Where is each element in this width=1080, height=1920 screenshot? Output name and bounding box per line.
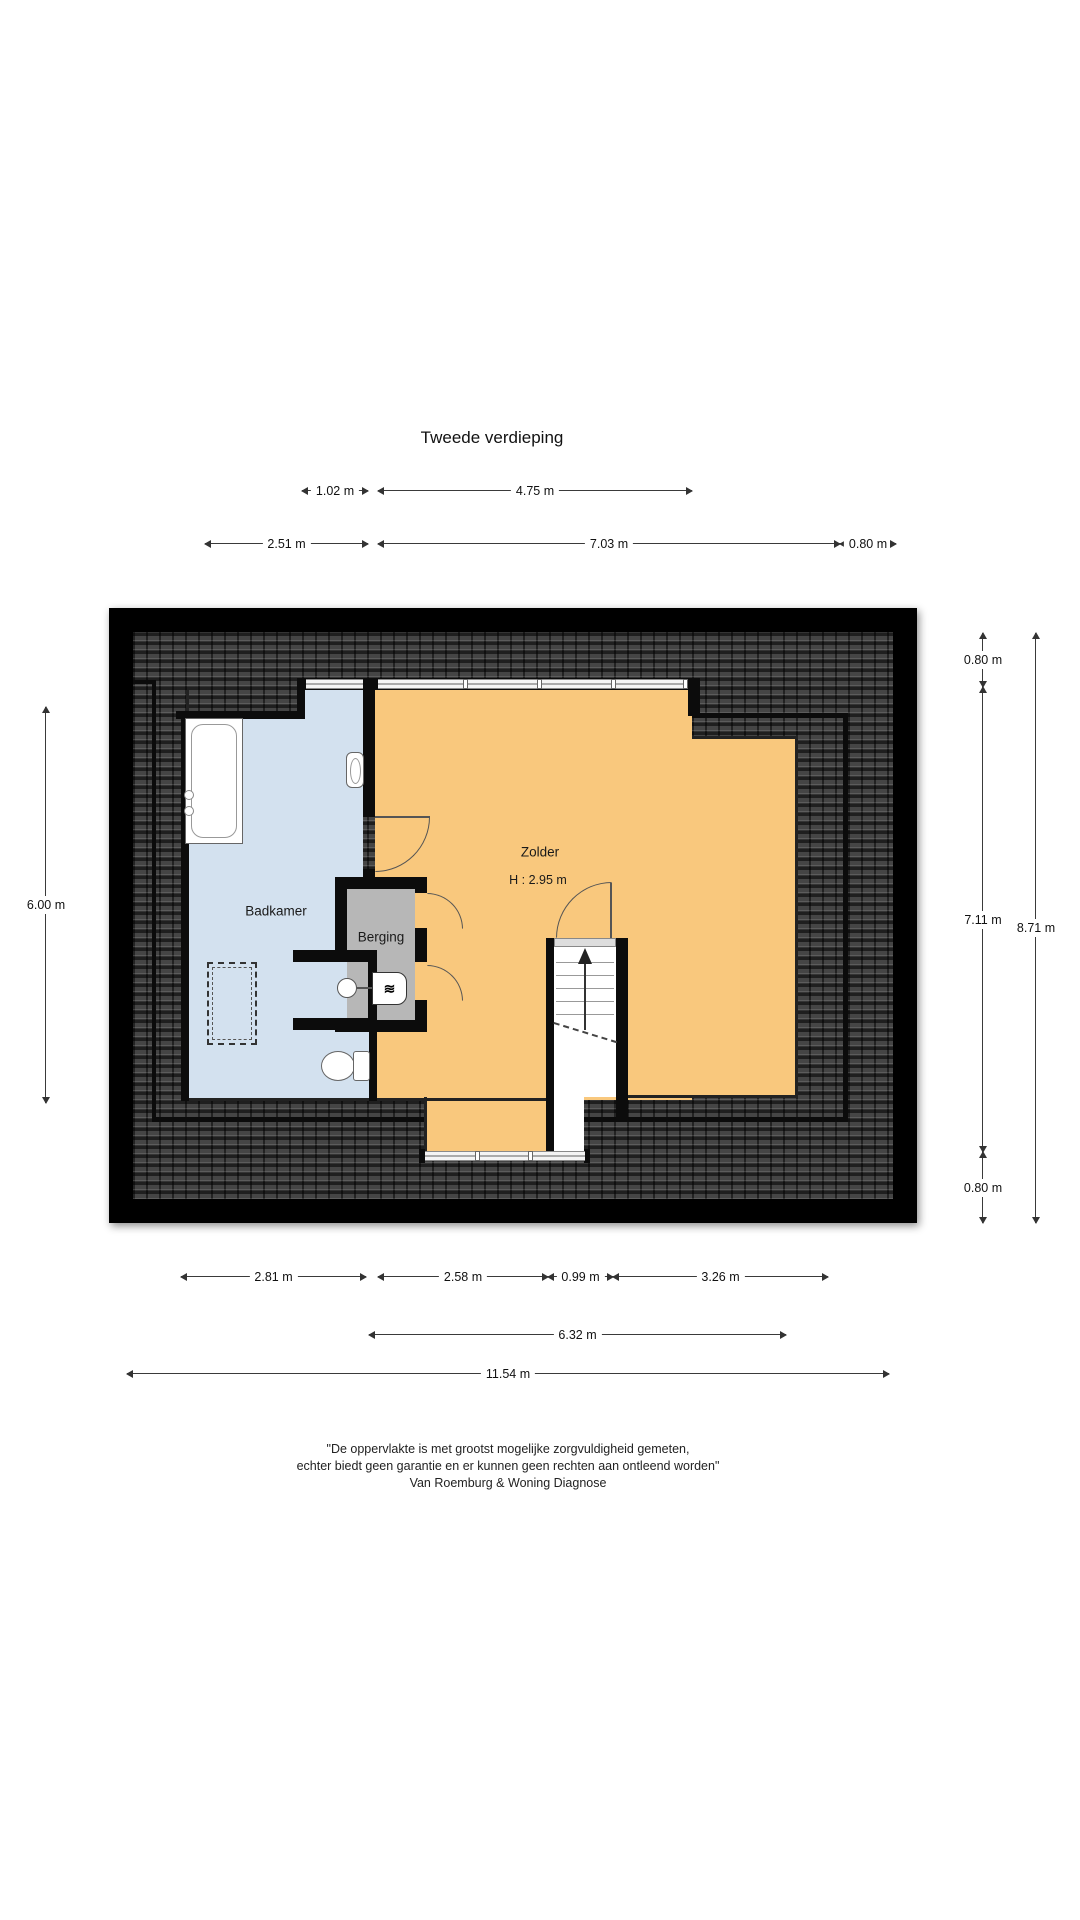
wall-berging-right-b xyxy=(415,928,427,962)
zolder-bottom-edge-right xyxy=(628,1095,797,1098)
roofline-topleft xyxy=(133,680,156,684)
dim-right-871: 8.71 m xyxy=(1035,633,1036,1223)
roofline-topright xyxy=(692,713,848,718)
dim-top-703: 7.03 m xyxy=(378,543,840,544)
sink xyxy=(346,752,364,788)
window-mullion xyxy=(537,679,542,689)
zolder-label: Zolder xyxy=(521,845,559,860)
window-bottom xyxy=(425,1151,585,1161)
disclaimer-line-3: Van Roemburg & Woning Diagnose xyxy=(158,1475,858,1492)
zolder-notch-edge xyxy=(692,736,798,739)
washbasin-connector xyxy=(357,987,373,989)
roofline-right xyxy=(843,713,848,1122)
zolder-floor-right xyxy=(692,738,797,1097)
wall-divider-jamb xyxy=(363,869,375,877)
dim-bottom-632: 6.32 m xyxy=(369,1334,786,1335)
dim-left-600: 6.00 m xyxy=(45,707,46,1103)
wall-berging-top xyxy=(335,877,427,889)
wall-lower-divider xyxy=(369,1030,377,1101)
wall-stairs-right xyxy=(616,938,628,1120)
roofline-left xyxy=(152,680,156,1120)
stairs-threshold xyxy=(554,938,616,947)
stair-arrow-line xyxy=(584,962,586,1030)
zolder-bottom-edge-left xyxy=(375,1098,546,1101)
bathtub-tap xyxy=(184,790,194,800)
window-mullion xyxy=(463,679,468,689)
wall-berging-bottom xyxy=(335,1020,427,1032)
page-title: Tweede verdieping xyxy=(421,428,564,448)
bathtub-tap xyxy=(184,806,194,816)
sink-bowl xyxy=(350,758,361,784)
wall-divider-upper xyxy=(363,678,375,817)
disclaimer: "De oppervlakte is met grootst mogelijke… xyxy=(158,1441,858,1492)
berging-label: Berging xyxy=(358,930,405,945)
zolder-height-label: H : 2.95 m xyxy=(509,873,567,887)
wall-stairs-left xyxy=(546,938,554,1152)
dim-top-102: 1.02 m xyxy=(302,490,368,491)
dim-top-251: 2.51 m xyxy=(205,543,368,544)
dormer-left-edge xyxy=(424,1097,427,1154)
floorplan-page: Tweede verdieping 1.02 m 4.75 m 2.51 m 7… xyxy=(0,0,1080,1920)
window-mullion xyxy=(528,1151,533,1161)
disclaimer-line-1: "De oppervlakte is met grootst mogelijke… xyxy=(158,1441,858,1458)
stairwell-lower xyxy=(554,1097,584,1152)
window-mullion xyxy=(475,1151,480,1161)
dim-bottom-326: 3.26 m xyxy=(613,1276,828,1277)
dim-bottom-281: 2.81 m xyxy=(181,1276,366,1277)
bathtub xyxy=(185,718,243,844)
window-badkamer xyxy=(306,679,363,689)
wall-berging-right-a xyxy=(415,877,427,893)
wall-step-topright xyxy=(688,678,700,716)
window-zolder xyxy=(378,679,687,689)
toilet-bowl xyxy=(321,1051,355,1081)
skylight-dashed-inner xyxy=(212,967,252,1040)
zolder-dormer xyxy=(425,1097,546,1152)
washbasin xyxy=(337,978,357,998)
dim-right-711: 7.11 m xyxy=(982,687,983,1152)
stairs-door-leaf xyxy=(610,883,612,938)
zolder-floor xyxy=(375,690,692,1100)
dim-top-475: 4.75 m xyxy=(378,490,692,491)
toilet-tank xyxy=(353,1051,370,1081)
boiler-icon: ≋ xyxy=(384,980,396,997)
bathtub-inner xyxy=(191,724,237,838)
dim-bottom-099: 0.99 m xyxy=(548,1276,613,1277)
skylight-dashed xyxy=(207,962,257,1045)
wall-nook-top xyxy=(293,950,373,962)
zolder-right-edge xyxy=(795,738,798,1098)
dim-top-080: 0.80 m xyxy=(840,543,896,544)
boiler: ≋ xyxy=(372,972,407,1005)
window-end-jamb xyxy=(683,679,688,689)
dim-right-080-top: 0.80 m xyxy=(982,633,983,687)
dim-bottom-1154: 11.54 m xyxy=(127,1373,889,1374)
dim-right-080-bottom: 0.80 m xyxy=(982,1152,983,1223)
zolder-door-leaf xyxy=(375,816,430,818)
badkamer-label: Badkamer xyxy=(245,904,307,919)
stair-arrow-head xyxy=(578,948,592,964)
disclaimer-line-2: echter biedt geen garantie en er kunnen … xyxy=(158,1458,858,1475)
window-mullion xyxy=(611,679,616,689)
badkamer-bottom-edge xyxy=(188,1098,370,1101)
dim-bottom-258: 2.58 m xyxy=(378,1276,548,1277)
